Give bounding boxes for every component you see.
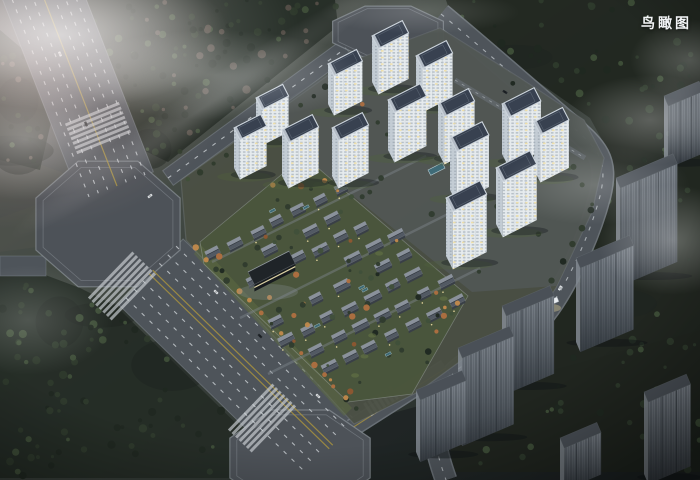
scene-svg xyxy=(0,0,700,480)
vignette xyxy=(0,0,700,480)
aerial-render: 鸟瞰图 xyxy=(0,0,700,480)
view-label: 鸟瞰图 xyxy=(641,13,692,33)
atmosphere-layer xyxy=(0,0,700,480)
